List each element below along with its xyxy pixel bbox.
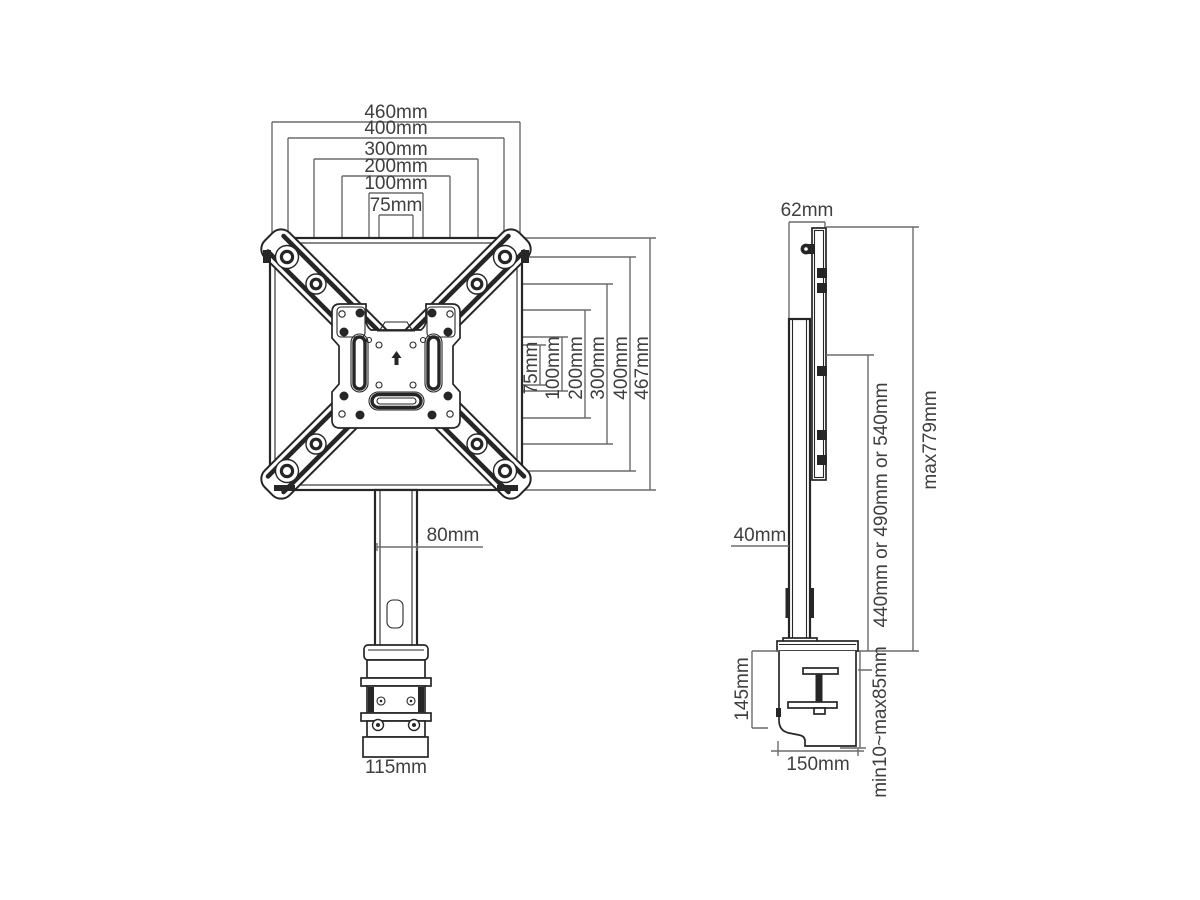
front-pole: 80mm [375, 490, 483, 647]
edge-tab-bottom-left [274, 485, 295, 491]
dim-v-300mm: 300mm [588, 336, 609, 399]
side-clamp: 145mm 150mm [732, 641, 864, 775]
vesa-mount-dimension-drawing: 460mm 400mm 300mm 200mm 100mm 75mm 75mm … [0, 0, 1200, 900]
dim-v-467mm: 467mm [632, 336, 653, 399]
edge-tab-left [263, 250, 271, 263]
dim-40mm: 40mm [734, 525, 787, 546]
dim-75mm: 75mm [370, 195, 423, 216]
front-base: 115mm [361, 645, 431, 778]
dim-115mm: 115mm [365, 757, 427, 778]
dim-400mm: 400mm [364, 118, 427, 139]
dim-v-200mm: 200mm [566, 336, 587, 399]
dim-height-options: 440mm or 490mm or 540mm [871, 383, 892, 628]
dim-100mm: 100mm [364, 173, 427, 194]
dim-145mm: 145mm [732, 657, 753, 720]
dim-150mm: 150mm [786, 754, 849, 775]
dim-v-75mm: 75mm [521, 342, 542, 395]
dim-clamp-range: min10~max85mm [870, 646, 891, 798]
side-pole: 40mm [731, 319, 817, 646]
dim-v-400mm: 400mm [611, 336, 632, 399]
technical-drawing-page: 460mm 400mm 300mm 200mm 100mm 75mm 75mm … [0, 0, 1200, 900]
edge-tab-bottom-right [497, 485, 518, 491]
dim-62mm: 62mm [781, 200, 834, 221]
front-view: 460mm 400mm 300mm 200mm 100mm 75mm 75mm … [256, 102, 656, 778]
edge-tab-right [521, 250, 529, 263]
dim-80mm: 80mm [427, 525, 480, 546]
dim-max779mm: max779mm [920, 390, 941, 489]
side-view: 62mm 40mm [731, 200, 941, 798]
dim-v-100mm: 100mm [543, 336, 564, 399]
